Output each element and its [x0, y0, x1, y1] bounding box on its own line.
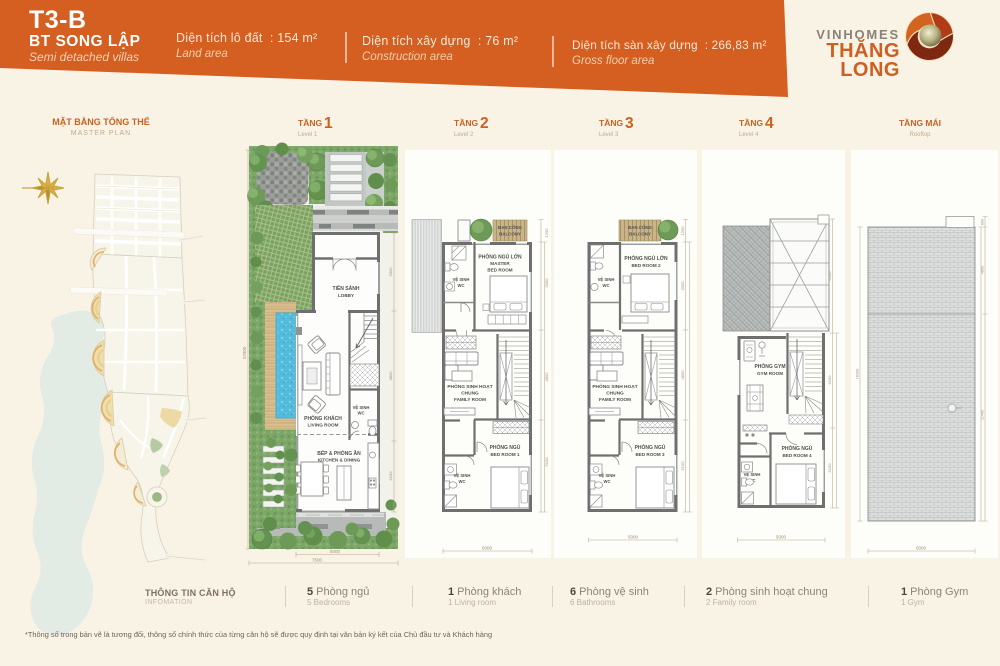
svg-text:WC: WC	[459, 479, 466, 484]
svg-text:BẾP & PHÒNG ĂN: BẾP & PHÒNG ĂN	[317, 449, 361, 457]
svg-text:BAN CÔNG: BAN CÔNG	[628, 225, 652, 230]
svg-text:BED ROOM 4: BED ROOM 4	[782, 453, 812, 458]
svg-text:WC: WC	[358, 411, 365, 416]
svg-text:4800: 4800	[981, 266, 985, 274]
svg-text:BED ROOM: BED ROOM	[487, 268, 512, 273]
svg-text:5000: 5000	[482, 546, 493, 551]
svg-text:VỆ SINH: VỆ SINH	[598, 277, 615, 282]
svg-text:6500: 6500	[827, 271, 832, 281]
svg-text:PHÒNG NGỦ: PHÒNG NGỦ	[635, 443, 666, 451]
svg-text:WC: WC	[458, 283, 465, 288]
svg-text:VỆ SINH: VỆ SINH	[744, 472, 761, 477]
svg-text:MASTER: MASTER	[490, 261, 510, 266]
svg-text:5000: 5000	[776, 535, 787, 540]
svg-text:FAMILY ROOM: FAMILY ROOM	[599, 397, 631, 402]
svg-text:PHÒNG NGỦ LỚN: PHÒNG NGỦ LỚN	[478, 253, 522, 261]
svg-text:PHÒNG NGỦ LỚN: PHÒNG NGỦ LỚN	[624, 254, 668, 262]
svg-text:11400: 11400	[981, 410, 985, 420]
svg-text:VỆ SINH: VỆ SINH	[599, 473, 616, 478]
svg-text:BED ROOM 3: BED ROOM 3	[635, 452, 665, 457]
svg-text:CHUNG: CHUNG	[606, 391, 624, 397]
svg-text:5200: 5200	[827, 375, 832, 385]
svg-text:1200: 1200	[680, 226, 685, 236]
svg-text:6000: 6000	[916, 546, 927, 551]
svg-text:16200: 16200	[856, 369, 860, 380]
svg-text:4800: 4800	[680, 370, 685, 380]
svg-text:PHÒNG NGỦ: PHÒNG NGỦ	[782, 444, 813, 452]
svg-text:VỆ SINH: VỆ SINH	[454, 473, 471, 478]
svg-text:22900: 22900	[242, 346, 247, 359]
svg-text:600: 600	[981, 219, 985, 225]
svg-text:3300: 3300	[388, 267, 393, 277]
svg-text:LIVING ROOM: LIVING ROOM	[308, 423, 339, 428]
svg-text:BALCONY: BALCONY	[499, 232, 521, 237]
svg-text:PHÒNG KHÁCH: PHÒNG KHÁCH	[304, 414, 342, 422]
svg-text:LOBBY: LOBBY	[338, 293, 354, 298]
svg-text:CHUNG: CHUNG	[461, 391, 479, 397]
svg-text:5000: 5000	[330, 549, 341, 554]
svg-text:GYM ROOM: GYM ROOM	[757, 371, 783, 376]
svg-text:BED ROOM 2: BED ROOM 2	[631, 263, 661, 268]
svg-text:PHÒNG GYM: PHÒNG GYM	[754, 362, 785, 370]
svg-text:WC: WC	[604, 479, 611, 484]
svg-text:5100: 5100	[680, 461, 685, 471]
svg-text:VỆ SINH: VỆ SINH	[353, 405, 370, 410]
svg-text:5100: 5100	[827, 463, 832, 473]
svg-text:WC: WC	[603, 283, 610, 288]
svg-text:TIỀN SẢNH: TIỀN SẢNH	[333, 285, 360, 292]
svg-text:BALCONY: BALCONY	[629, 232, 651, 237]
svg-text:3300: 3300	[680, 281, 685, 291]
svg-text:KITCHEN & DINING: KITCHEN & DINING	[318, 458, 361, 463]
svg-text:5000: 5000	[628, 535, 639, 540]
svg-text:5100: 5100	[388, 471, 393, 481]
svg-text:PHÒNG NGỦ: PHÒNG NGỦ	[490, 443, 521, 451]
svg-text:BED ROOM 1: BED ROOM 1	[490, 452, 520, 457]
svg-text:VỆ SINH: VỆ SINH	[453, 277, 470, 282]
svg-text:FAMILY ROOM: FAMILY ROOM	[454, 397, 486, 402]
svg-text:BAN CÔNG: BAN CÔNG	[498, 225, 522, 230]
svg-text:4800: 4800	[388, 371, 393, 381]
svg-text:7500: 7500	[312, 558, 323, 563]
